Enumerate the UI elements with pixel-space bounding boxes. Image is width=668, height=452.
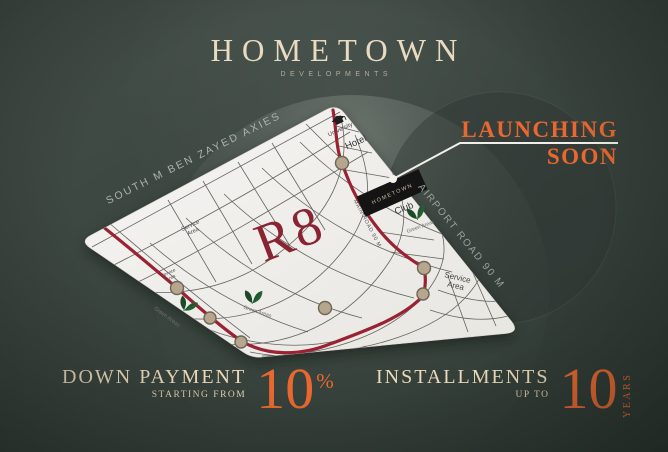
brand-tagline: DEVELOPMENTS [0,71,668,78]
launching-soon-banner: LAUNCHING SOON [461,118,618,168]
brand-block: HOMETOWN DEVELOPMENTS [0,33,668,78]
installments-value: 10 [560,365,618,413]
installments-title: INSTALLMENTS [376,367,550,387]
down-payment-title: DOWN PAYMENT [62,367,246,387]
location-dot [389,175,397,183]
poster-canvas: R8 University Hotel Club HOMETOWN Green … [0,0,668,452]
down-payment-unit: % [316,369,334,394]
down-payment-subtitle: STARTING FROM [62,390,246,400]
brand-logo: HOMETOWN [0,33,668,70]
down-payment-value: 10 [256,365,314,413]
installments-subtitle: UP TO [376,390,550,400]
launching-line1: LAUNCHING [461,118,618,141]
launching-line2: SOON [461,145,618,168]
down-payment-offer: DOWN PAYMENT STARTING FROM 10 % [62,367,334,413]
installments-unit: YEARS [622,368,633,418]
installments-offer: INSTALLMENTS UP TO 10 YEARS [376,367,633,418]
